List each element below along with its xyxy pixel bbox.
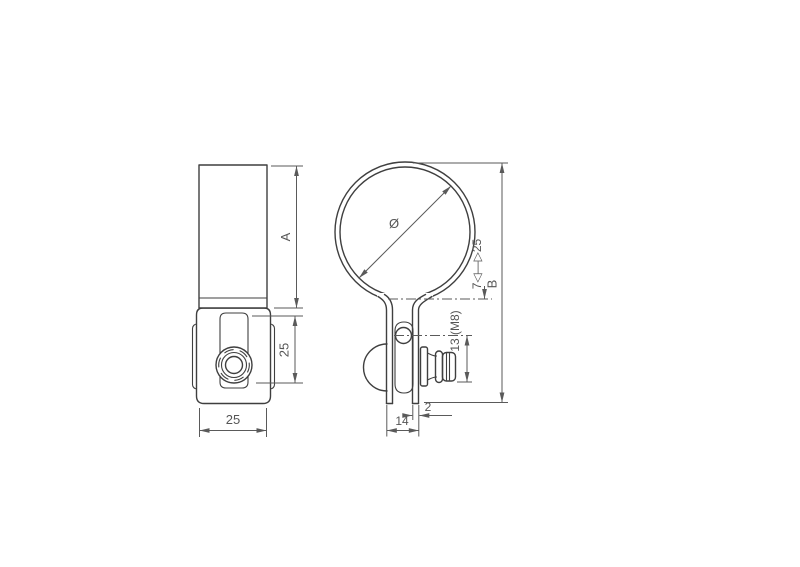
side-dim-bolt: 13 (M8) <box>448 310 472 382</box>
side-dim-thickness: 2 <box>403 400 452 437</box>
washer-flange <box>421 347 428 386</box>
dim-label-leg-span: 14 <box>395 414 409 428</box>
dim-label-A: A <box>278 232 293 241</box>
dim-label-thickness: 2 <box>425 400 432 414</box>
dim-label-25v: 25 <box>277 343 292 357</box>
side-dim-leg-span: 14 <box>387 405 419 437</box>
front-dim-A: A <box>271 166 303 308</box>
front-dim-25-horizontal: 25 <box>200 408 267 437</box>
nut-profile <box>421 347 456 386</box>
dim-label-range: 7◁—▷25 <box>470 238 484 289</box>
drawing-canvas: A 25 25 <box>0 0 800 567</box>
dim-label-bolt: 13 (M8) <box>448 310 462 351</box>
side-dim-diameter: Ø <box>359 186 451 278</box>
side-dim-range: 7◁—▷25 <box>470 238 485 299</box>
front-nut <box>216 347 252 383</box>
front-tube <box>199 165 267 308</box>
dim-label-B: B <box>485 280 500 289</box>
dim-label-diameter: Ø <box>389 216 399 231</box>
front-view: A 25 25 <box>193 165 304 437</box>
dome-bulge <box>363 344 387 391</box>
dim-label-25h: 25 <box>226 412 240 427</box>
side-view: Ø 7◁—▷25 B 13 (M8) 2 <box>335 162 508 437</box>
tube-clamp-drawing: A 25 25 <box>0 0 800 567</box>
